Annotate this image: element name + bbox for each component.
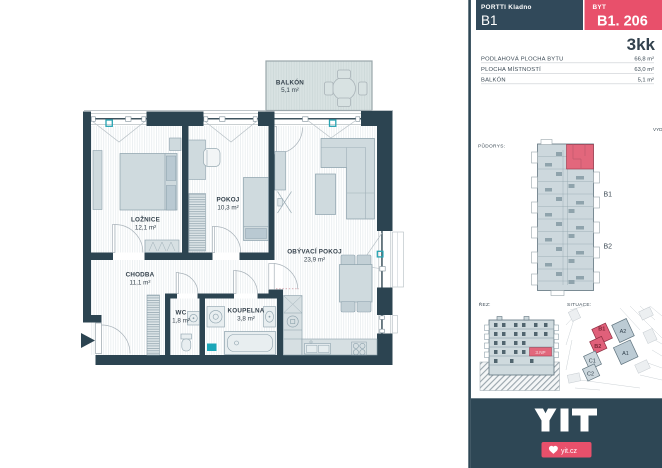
svg-text:POKOJ: POKOJ <box>216 197 239 204</box>
svg-text:PŮDORYS:: PŮDORYS: <box>478 143 505 150</box>
svg-text:3.NP: 3.NP <box>535 350 545 355</box>
svg-text:5,1 m²: 5,1 m² <box>281 87 299 94</box>
svg-text:BYT: BYT <box>593 4 607 11</box>
svg-text:1,8 m²: 1,8 m² <box>172 318 190 325</box>
svg-text:SITUACE:: SITUACE: <box>567 302 592 308</box>
svg-text:5,1 m²: 5,1 m² <box>638 78 654 84</box>
svg-text:B2: B2 <box>604 244 613 251</box>
svg-text:12,1 m²: 12,1 m² <box>135 225 156 232</box>
svg-text:B1: B1 <box>598 327 605 333</box>
svg-text:B2: B2 <box>594 344 601 350</box>
svg-text:10,3 m²: 10,3 m² <box>217 205 238 212</box>
svg-text:A1: A1 <box>622 351 629 357</box>
svg-text:PODLAHOVÁ PLOCHA BYTU: PODLAHOVÁ PLOCHA BYTU <box>481 56 563 63</box>
svg-text:B1: B1 <box>481 13 498 28</box>
svg-text:23,9 m²: 23,9 m² <box>304 257 325 264</box>
svg-text:LOŽNICE: LOŽNICE <box>131 215 160 224</box>
svg-text:3,8 m²: 3,8 m² <box>237 316 255 323</box>
svg-text:B1: B1 <box>604 192 613 199</box>
svg-text:CHODBA: CHODBA <box>126 272 155 279</box>
svg-text:63,0 m²: 63,0 m² <box>634 67 654 73</box>
svg-text:BALKÓN: BALKÓN <box>276 78 304 87</box>
svg-text:PLOCHA MÍSTNOSTÍ: PLOCHA MÍSTNOSTÍ <box>481 66 541 73</box>
svg-text:11,1 m²: 11,1 m² <box>130 280 151 287</box>
svg-text:A2: A2 <box>620 329 627 335</box>
svg-text:C1: C1 <box>589 359 596 365</box>
svg-text:3kk: 3kk <box>627 35 656 54</box>
svg-text:OBÝVACÍ POKOJ: OBÝVACÍ POKOJ <box>287 247 342 256</box>
svg-text:PORTTI Kladno: PORTTI Kladno <box>481 4 532 11</box>
svg-text:WC: WC <box>176 310 187 317</box>
svg-text:B1. 206: B1. 206 <box>597 14 648 30</box>
svg-text:C2: C2 <box>587 372 594 378</box>
svg-text:KOUPELNA: KOUPELNA <box>228 308 265 315</box>
svg-text:BALKÓN: BALKÓN <box>481 77 506 84</box>
svg-text:yit.cz: yit.cz <box>561 448 577 455</box>
svg-text:VYDÁNO DNE: 31. 10. 2024: VYDÁNO DNE: 31. 10. 2024 <box>653 126 662 132</box>
svg-text:66,8 m²: 66,8 m² <box>634 57 654 63</box>
